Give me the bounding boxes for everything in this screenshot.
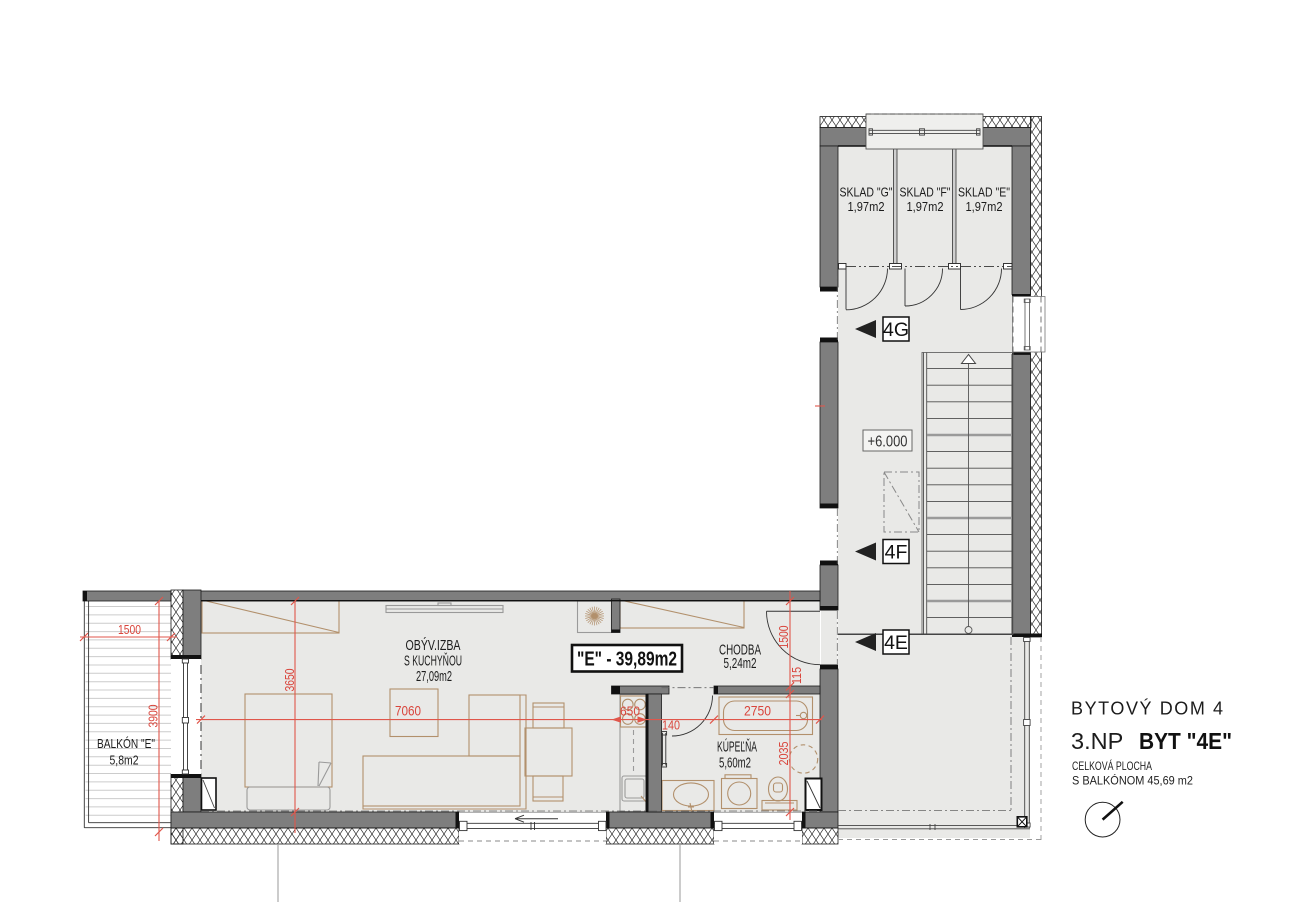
svg-text:3900: 3900 xyxy=(146,705,161,728)
svg-text:3650: 3650 xyxy=(282,669,297,692)
svg-text:1,97m2: 1,97m2 xyxy=(966,199,1003,214)
svg-text:S KUCHYŇOU: S KUCHYŇOU xyxy=(404,653,462,670)
svg-text:2750: 2750 xyxy=(744,703,771,719)
svg-text:140: 140 xyxy=(662,718,680,733)
svg-text:S BALKÓNOM 45,69 m2: S BALKÓNOM 45,69 m2 xyxy=(1072,773,1193,788)
svg-text:BALKÓN "E": BALKÓN "E" xyxy=(97,736,155,751)
svg-text:1500: 1500 xyxy=(776,626,791,649)
svg-text:27,09m2: 27,09m2 xyxy=(416,668,452,685)
svg-text:CELKOVÁ PLOCHA: CELKOVÁ PLOCHA xyxy=(1072,758,1152,773)
svg-text:115: 115 xyxy=(789,667,804,684)
svg-text:650: 650 xyxy=(620,704,640,719)
svg-text:"E" - 39,89m2: "E" - 39,89m2 xyxy=(577,649,677,671)
svg-text:5,24m2: 5,24m2 xyxy=(724,655,757,672)
svg-text:OBÝV.IZBA: OBÝV.IZBA xyxy=(406,637,461,654)
svg-text:+6.000: +6.000 xyxy=(868,434,908,451)
svg-text:BYT "4E": BYT "4E" xyxy=(1139,728,1232,754)
svg-text:4G: 4G xyxy=(883,319,909,341)
svg-text:7060: 7060 xyxy=(395,703,421,719)
svg-text:5,8m2: 5,8m2 xyxy=(110,753,139,768)
svg-text:SKLAD "E": SKLAD "E" xyxy=(958,185,1010,200)
svg-text:SKLAD "F": SKLAD "F" xyxy=(900,185,951,200)
svg-text:3.NP: 3.NP xyxy=(1071,728,1123,754)
svg-text:1500: 1500 xyxy=(118,622,141,637)
svg-text:4F: 4F xyxy=(885,542,908,564)
svg-text:2035: 2035 xyxy=(776,742,791,766)
svg-text:1,97m2: 1,97m2 xyxy=(848,199,885,214)
svg-text:SKLAD "G": SKLAD "G" xyxy=(840,185,893,200)
svg-text:KÚPEĽŇA: KÚPEĽŇA xyxy=(717,739,757,756)
svg-text:4E: 4E xyxy=(884,632,908,654)
svg-text:BYTOVÝ DOM 4: BYTOVÝ DOM 4 xyxy=(1071,699,1223,719)
svg-text:5,60m2: 5,60m2 xyxy=(719,756,751,772)
svg-text:1,97m2: 1,97m2 xyxy=(907,199,944,214)
